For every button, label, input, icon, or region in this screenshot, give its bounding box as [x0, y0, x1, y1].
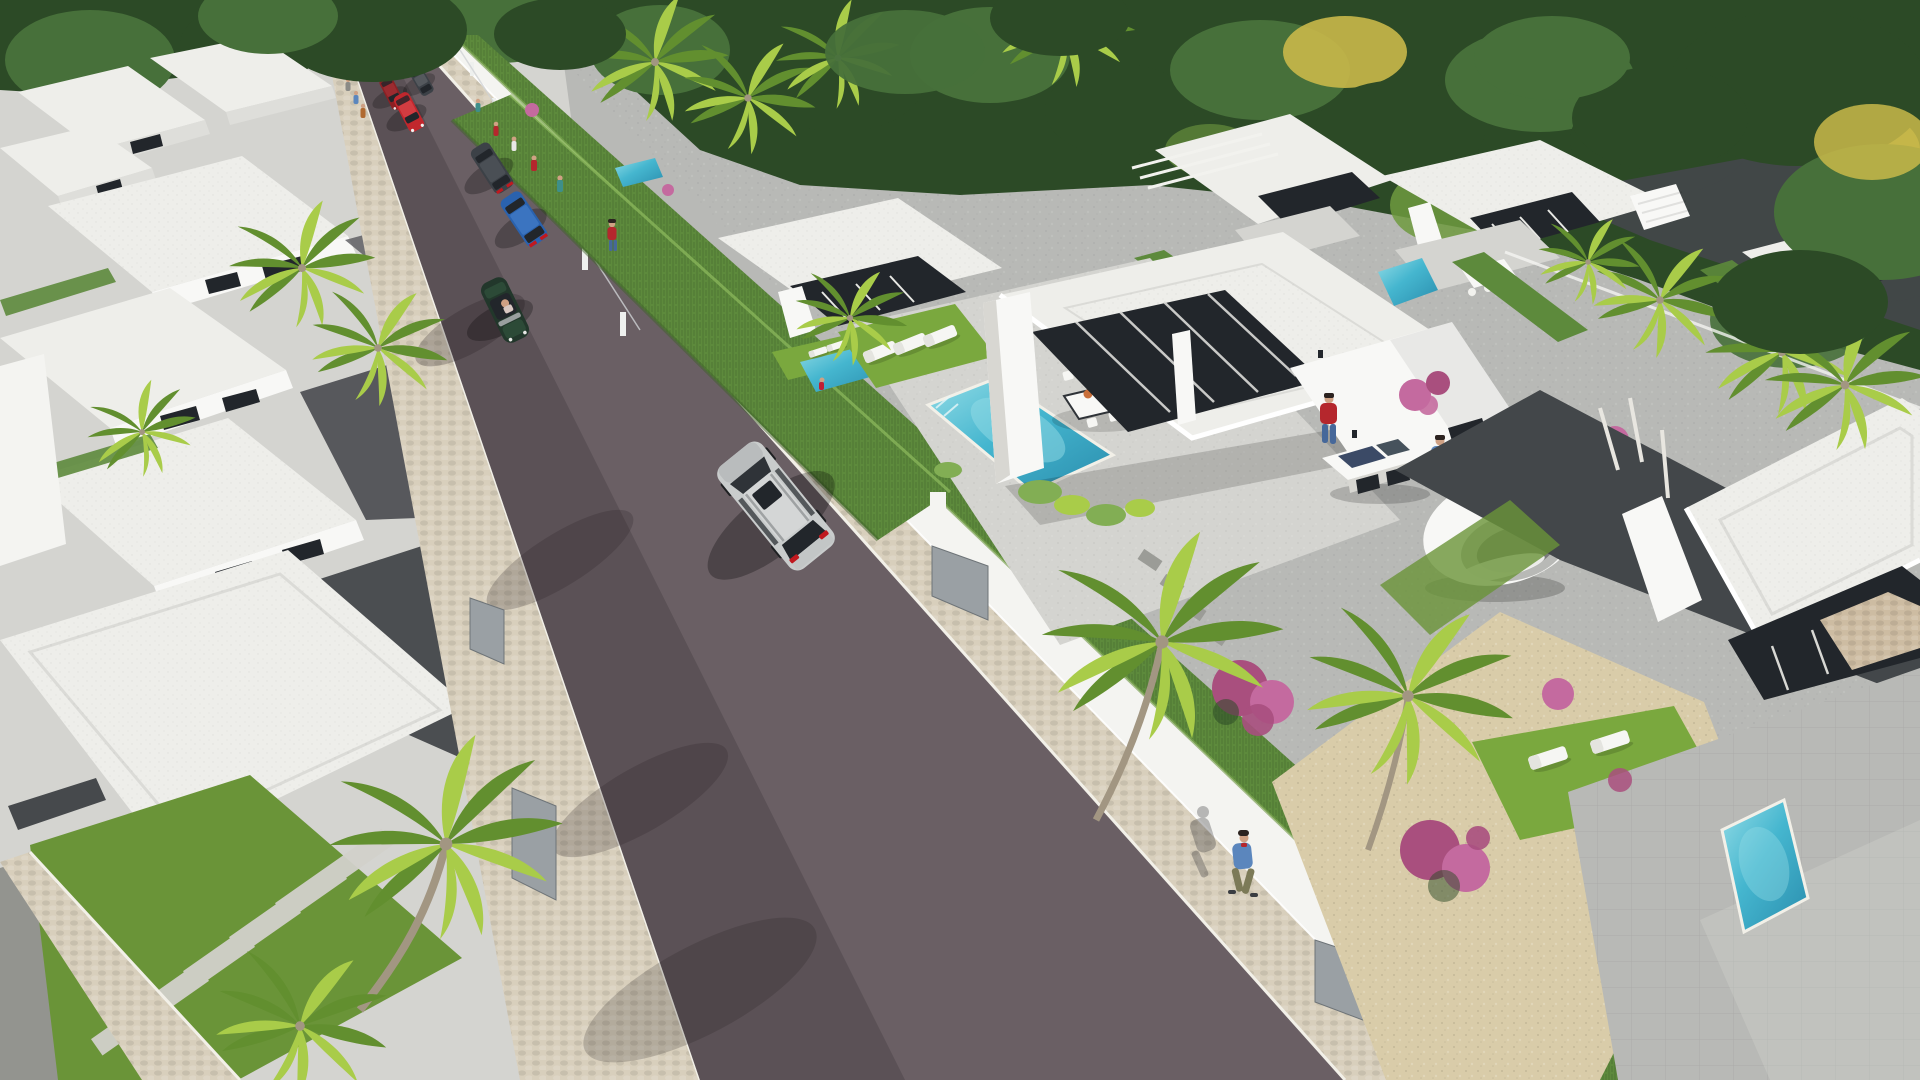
- person-at-neighbour-pool: [819, 378, 825, 391]
- hedge-end-pillar: [930, 492, 946, 534]
- roadside-villa-pool-glimpse: [615, 158, 663, 187]
- villa-development-aerial-render: Aerial 3D render of a modern white-villa…: [0, 0, 1920, 1080]
- render-viewport: Aerial 3D render of a modern white-villa…: [0, 0, 1920, 1080]
